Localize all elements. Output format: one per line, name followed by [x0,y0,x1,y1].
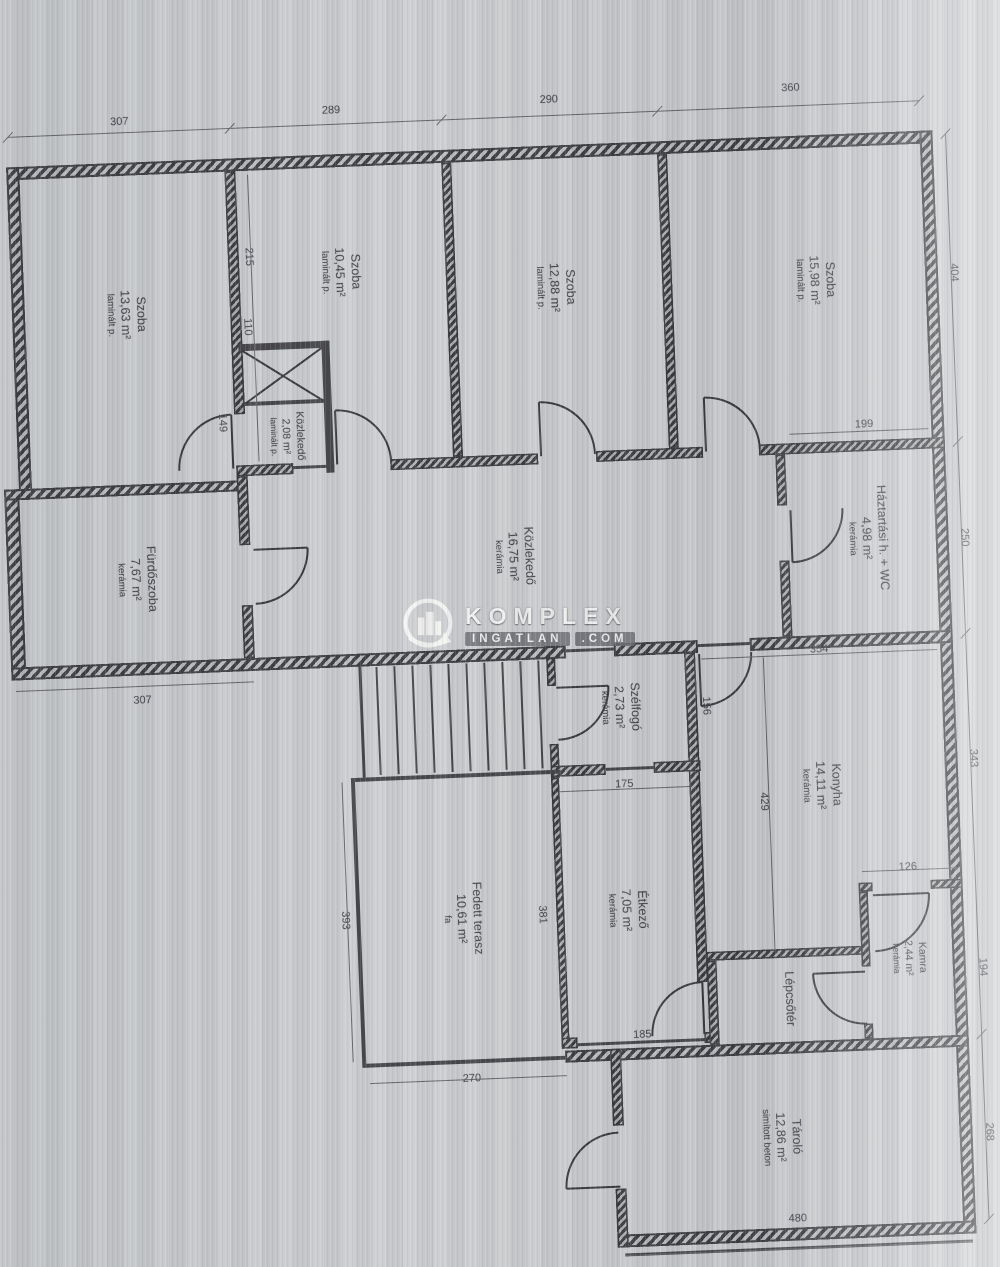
room-label-kozlekedo-kis: Közlekedő 2,08 m² laminált p. [267,411,307,462]
room-name: Kamra [914,942,929,973]
room-area: 10,61 m² [452,894,470,944]
dimension-label: 250 [958,528,971,547]
room-floor: kerámia [598,691,612,725]
door-arc [254,548,310,604]
dimension-label: 199 [855,418,874,431]
room-floor: laminált p. [793,259,807,303]
room-floor: kerámia [890,943,902,974]
dimension-label: 194 [977,957,990,976]
room-name: Konyha [828,763,846,806]
room-label-tarolo: Tároló 12,86 m² simított beton [759,1108,806,1167]
room-area: 12,88 m² [545,263,563,313]
room-floor: laminált p. [267,417,280,456]
dimension-label: 307 [133,694,152,707]
room-floor: kerámia [115,563,129,597]
room-label-kozlekedo: Közlekedő 16,75 m² kerámia [491,526,538,586]
watermark-logo-icon [400,596,456,652]
room-floor: laminált p. [533,266,547,310]
room-floor: laminált p. [318,251,332,295]
room-floor: simított beton [759,1109,774,1166]
watermark-ingatlan-pill: INGATLAN [465,632,570,646]
dimension-label: 268 [983,1122,996,1141]
room-label-haztartasi: Háztartási h. + WC 4,98 m² kerámia [844,485,893,592]
watermark-subbrand: INGATLAN .COM [465,632,635,646]
room-area: 13,63 m² [116,290,134,340]
room-label-szoba-4: Szoba 15,98 m² laminált p. [793,254,840,305]
watermark: KOMPLEX INGATLAN .COM [400,596,635,652]
room-name: Tároló [788,1118,806,1154]
room-area: 7,05 m² [617,889,635,932]
room-label-szoba-2: Szoba 10,45 m² laminált p. [318,247,365,298]
room-area: 4,98 m² [858,517,876,560]
door-arc [790,508,844,562]
room-area: 2,44 m² [901,940,916,976]
dimension-label: 185 [633,1028,652,1041]
room-name: Szoba [347,253,365,289]
room-label-szelfogo: Szélfogó 2,73 m² kerámia [598,682,645,732]
room-floor: laminált p. [104,293,118,337]
dimension-label: 381 [536,905,549,924]
dimension-label: 110 [241,318,254,336]
room-name: Szélfogó [626,682,644,731]
dimension-label: 156 [700,696,713,715]
room-floor: kerámia [605,894,619,928]
room-name: Szoba [133,296,151,332]
room-name: Szoba [562,269,580,305]
room-area: 7,67 m² [127,558,145,601]
door-arc [564,1133,620,1189]
stairs-treads [376,660,542,774]
dimension-label: 289 [322,104,341,117]
door-arc [704,395,760,451]
dimension-label: 175 [615,778,634,791]
dimension-label: 290 [539,93,558,106]
room-area: 12,86 m² [772,1112,790,1162]
watermark-brand: KOMPLEX [465,603,635,630]
door-arc [539,400,595,456]
watermark-com-pill: .COM [575,632,635,646]
room-label-lepcsoter: Lépcsőtér [781,971,799,1027]
dimension-label: 360 [781,82,800,95]
room-label-konyha: Konyha 14,11 m² kerámia [799,760,846,810]
room-name: Közlekedő [292,411,308,461]
room-floor: kerámia [846,522,860,556]
room-floor: fa [441,915,454,923]
watermark-text: KOMPLEX INGATLAN .COM [465,603,635,646]
room-floor: kerámia [492,540,506,574]
door-arc [650,982,704,1036]
dimension-label: 215 [242,247,255,266]
dimension-label: 404 [948,263,961,282]
room-label-etkezo: Étkező 7,05 m² kerámia [605,888,652,932]
dimension-label: 343 [967,749,980,768]
room-area: 2,08 m² [278,418,293,454]
dimension-label: 126 [898,860,917,873]
room-area: 2,73 m² [610,686,628,729]
floor-plan-photo: Szoba 13,63 m² laminált p. Szoba 10,45 m… [0,0,1000,1267]
room-floor: kerámia [799,769,813,803]
room-area: 16,75 m² [504,531,522,581]
room-name: Szoba [822,261,840,297]
room-label-szoba-3: Szoba 12,88 m² laminált p. [533,262,580,313]
room-name: Fedett terasz [468,881,487,955]
door-arc [335,408,391,464]
room-label-fedett-terasz: Fedett terasz 10,61 m² fa [440,881,488,956]
dimension-label: 480 [788,1212,807,1225]
room-label-kamra: Kamra 2,44 m² kerámia [890,939,930,976]
room-name: Étkező [634,890,652,929]
dimension-label: 149 [216,414,229,433]
room-area: 14,11 m² [811,761,829,810]
room-label-furdoszoba: Fürdőszoba 7,67 m² kerámia [114,546,161,614]
room-name: Fürdőszoba [143,546,162,613]
door-arc [813,972,867,1026]
room-area: 10,45 m² [330,247,348,297]
dimension-label: 354 [810,643,829,656]
dimension-label: 270 [463,1072,482,1085]
room-area: 15,98 m² [805,255,823,305]
dimension-label: 307 [110,116,129,129]
dimension-lines [0,95,995,1267]
dimension-label: 429 [758,792,771,811]
room-name: Lépcsőtér [781,971,799,1027]
dimension-label: 393 [339,911,352,930]
room-name: Közlekedő [520,526,539,585]
room-label-szoba-1: Szoba 13,63 m² laminált p. [104,289,151,340]
